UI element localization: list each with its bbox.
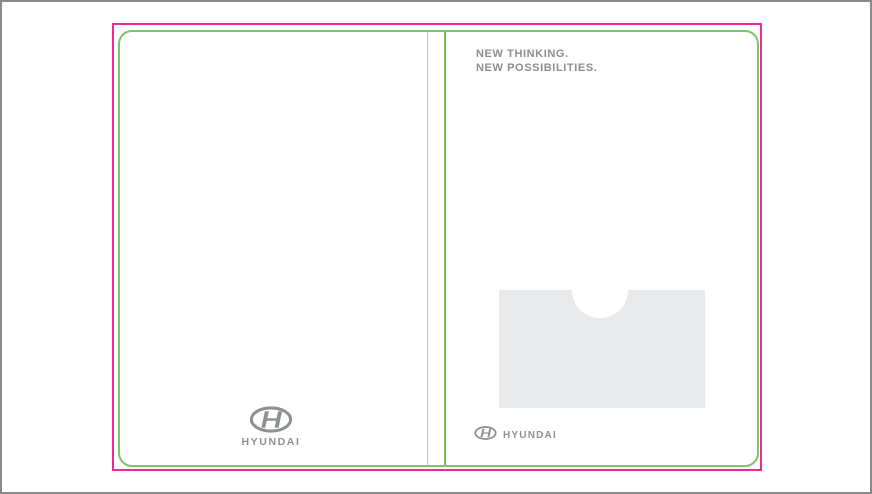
hyundai-logo-icon — [474, 426, 497, 445]
headline: NEW THINKING. NEW POSSIBILITIES. — [476, 47, 597, 75]
spine-fold-line-right — [444, 32, 446, 465]
pocket-thumb-notch — [572, 262, 628, 318]
hyundai-logo-icon — [220, 406, 322, 433]
front-panel-logo: HYUNDAI — [474, 426, 557, 445]
headline-line1: NEW THINKING. — [476, 47, 597, 61]
hyundai-wordmark: HYUNDAI — [220, 436, 322, 448]
headline-line2: NEW POSSIBILITIES. — [476, 61, 597, 75]
folder-artwork-canvas: NEW THINKING. NEW POSSIBILITIES. HYUNDAI… — [0, 0, 872, 494]
spine-fold-line-left — [427, 32, 428, 465]
hyundai-wordmark: HYUNDAI — [503, 430, 557, 441]
back-panel-logo: HYUNDAI — [220, 406, 322, 448]
